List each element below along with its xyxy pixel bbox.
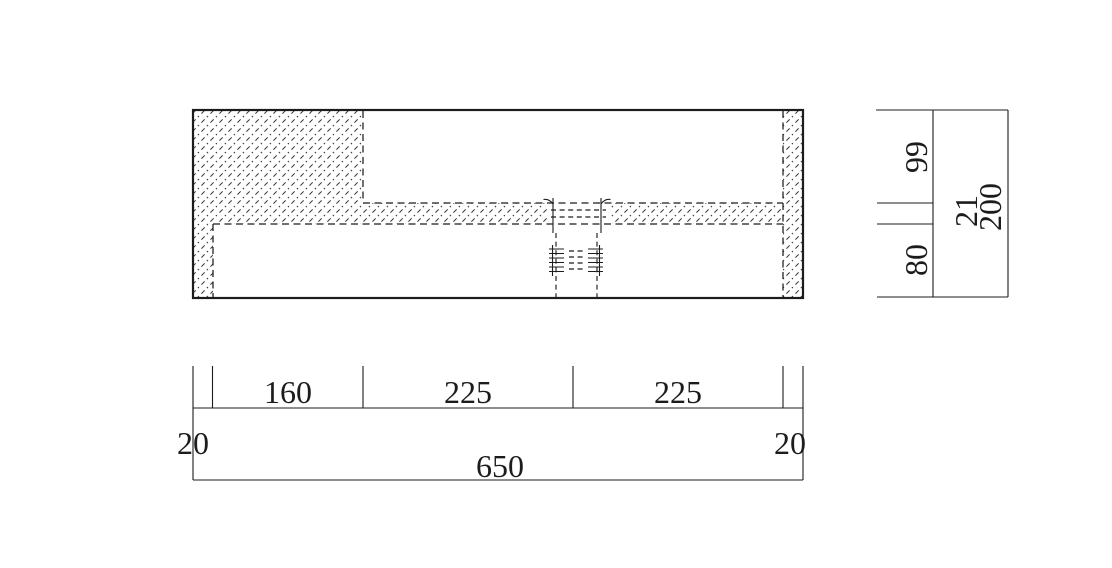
drawing-canvas: 160 225 225 20 20 650 99 80 21 200: [0, 0, 1112, 568]
section-drawing: 160 225 225 20 20 650 99 80 21 200: [0, 0, 1112, 568]
dim-right-bay-label: 225: [654, 374, 702, 410]
dim-block-width-label: 160: [264, 374, 312, 410]
hatched-left-wall: [194, 224, 213, 297]
dim-overall-width-label: 650: [476, 448, 524, 484]
width-dimension-block: 160 225 225 20 20 650: [177, 366, 806, 484]
dim-left-bay-label: 225: [444, 374, 492, 410]
dim-upper-depth-label: 99: [898, 141, 934, 173]
drain-flange-hidden-lines: [551, 210, 606, 217]
drain-thread-right: [588, 249, 603, 272]
hatched-slab-right: [610, 203, 783, 224]
drain-hidden-detail: [544, 198, 611, 297]
section-view: [193, 110, 803, 298]
drain-pipe-hidden-edges: [556, 233, 597, 297]
dim-overall-height-label: 200: [972, 183, 1008, 231]
height-slab-ticks: [877, 203, 933, 224]
drain-bore-hidden-lines: [569, 251, 586, 269]
dim-left-wall-label: 20: [177, 425, 209, 461]
dim-lower-depth-label: 80: [898, 244, 934, 276]
hatched-right-wall: [783, 111, 802, 297]
hatched-slab-left: [363, 203, 548, 224]
hatched-block-top-left: [194, 111, 363, 224]
height-dimension-block: 99 80 21 200: [876, 110, 1008, 297]
dim-right-wall-label: 20: [774, 425, 806, 461]
